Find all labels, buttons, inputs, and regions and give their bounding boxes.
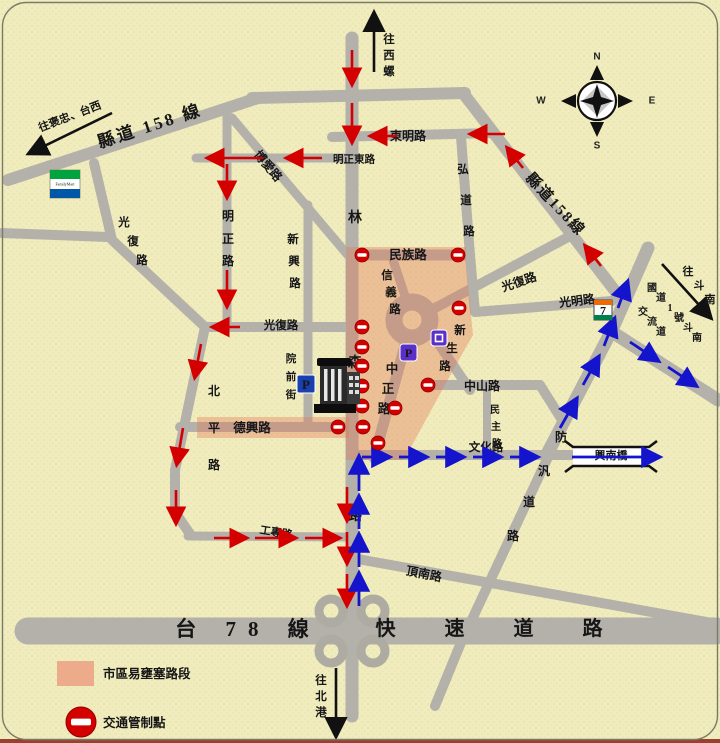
svg-text:P: P: [302, 377, 310, 392]
parking-icon-1: P: [400, 344, 417, 361]
parking-icon-2: [431, 330, 447, 346]
label-to-xiluo: 往西螺: [383, 32, 395, 78]
legend-control-label: 交通管制點: [103, 715, 166, 730]
compass-e-label: E: [649, 96, 656, 107]
no-entry-icon: [452, 301, 466, 315]
label-wenhua: 文化路: [469, 440, 504, 454]
seven-eleven-icon: 7: [594, 300, 612, 320]
label-beiping: 北平路: [208, 383, 221, 472]
legend-congestion-label: 市區易壅塞路段: [103, 666, 191, 681]
svg-text:P: P: [405, 346, 412, 360]
no-entry-icon: [355, 320, 369, 334]
legend-congestion-swatch: [57, 661, 94, 686]
label-minzu: 民族路: [389, 247, 427, 262]
legend-no-entry-icon: [66, 707, 96, 737]
label-mingzheng: 明正路: [222, 209, 235, 268]
label-guangfu-mid: 光復路: [263, 318, 299, 332]
no-entry-icon: [451, 248, 465, 262]
no-entry-icon: [331, 420, 345, 434]
no-entry-icon: [421, 378, 435, 392]
label-tai78: 台 78 線: [175, 617, 321, 641]
bridge-label: 興南橋: [595, 448, 629, 462]
label-to-beigang: 往北港: [315, 673, 327, 719]
compass-s-label: S: [594, 141, 601, 152]
label-mingzheng-east: 明正東路: [333, 153, 375, 166]
no-entry-icon: [355, 340, 369, 354]
label-zhongshan: 中山路: [464, 378, 501, 393]
svg-text:FamilyMart: FamilyMart: [55, 182, 75, 187]
familymart-icon: FamilyMart: [50, 170, 80, 198]
compass-w-label: W: [536, 96, 546, 107]
svg-text:7: 7: [600, 304, 606, 318]
label-kuaisu: 快 速 道 路: [376, 616, 625, 640]
parking-icon-3: P: [297, 375, 315, 393]
label-yuanqian: 院前街: [285, 352, 297, 401]
no-entry-icon: [388, 401, 402, 415]
no-entry-icon: [356, 420, 370, 434]
label-dexing: 德興路: [233, 420, 271, 435]
no-entry-icon: [371, 436, 385, 450]
road-west-branch: [2, 233, 108, 237]
traffic-map: 興南橋 縣道 158 線 縣道158線 林森路 東明路 明正東路 明正路 博愛路…: [0, 0, 720, 743]
map-canvas: 興南橋 縣道 158 線 縣道158線 林森路 東明路 明正東路 明正路 博愛路…: [0, 0, 720, 743]
no-entry-icon: [355, 248, 369, 262]
no-entry-icon: [355, 359, 369, 373]
compass-n-label: N: [593, 52, 600, 63]
